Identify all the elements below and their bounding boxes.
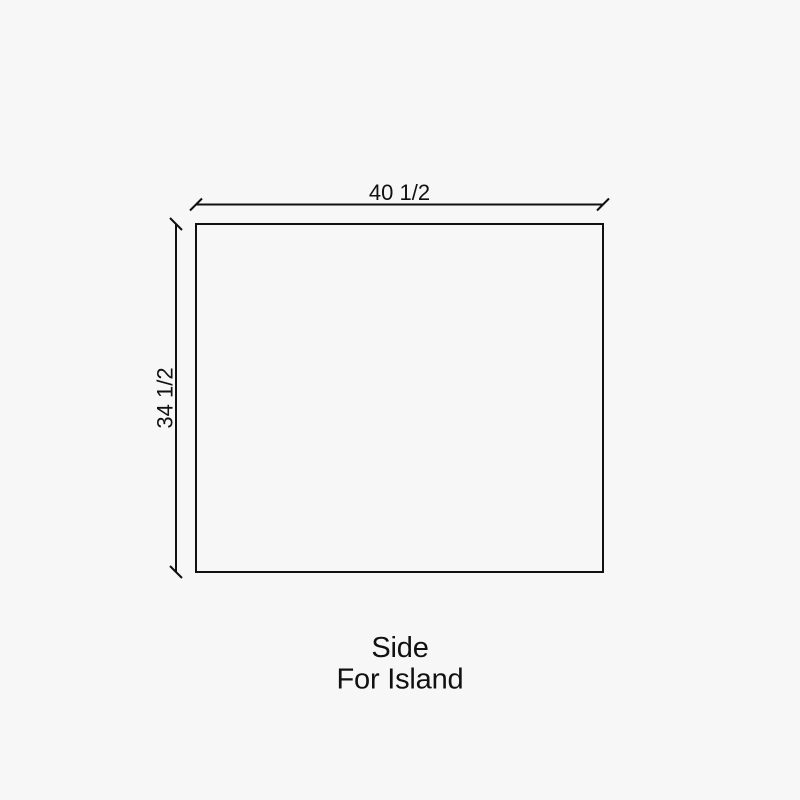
svg-text:Side: Side [371, 632, 428, 664]
svg-text:For Island: For Island [337, 664, 464, 696]
svg-text:40 1/2: 40 1/2 [369, 180, 430, 205]
svg-text:34 1/2: 34 1/2 [153, 367, 178, 428]
